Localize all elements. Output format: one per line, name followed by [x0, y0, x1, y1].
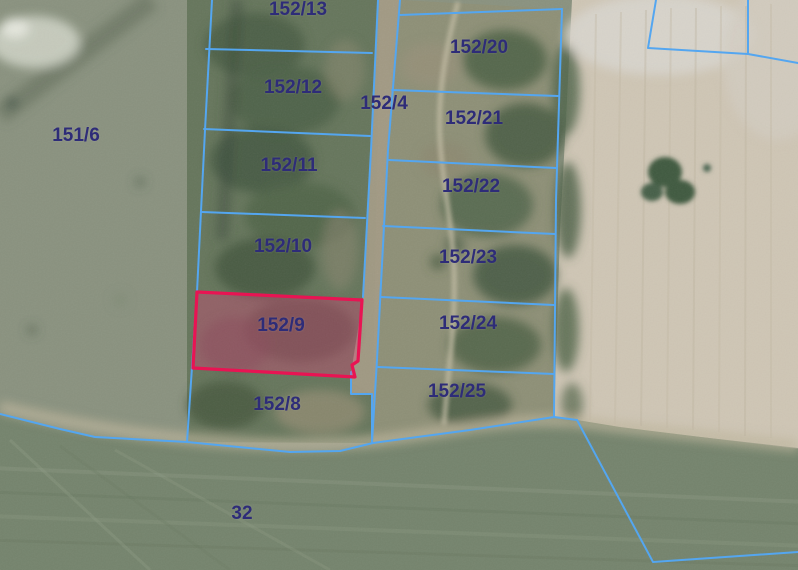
- aerial-imagery: [0, 0, 798, 570]
- map-canvas[interactable]: 151/6 152/13 152/12 152/4 152/11 152/10 …: [0, 0, 798, 570]
- aerial-map-svg: [0, 0, 798, 570]
- highlighted-parcel-152-9[interactable]: [193, 292, 362, 377]
